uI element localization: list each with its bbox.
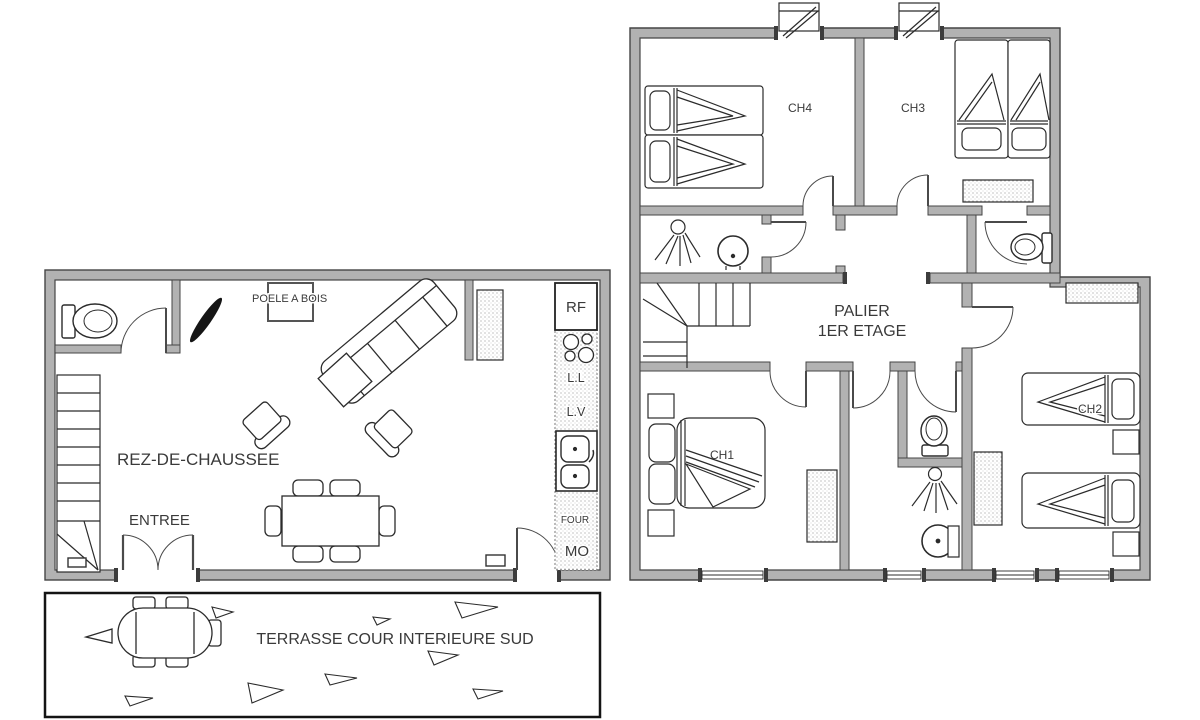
kitchen-strip: RF L.L L.V FOUR MO bbox=[555, 283, 597, 570]
floorplan-canvas: POELE A BOIS bbox=[0, 0, 1200, 720]
fridge-label: RF bbox=[566, 299, 586, 316]
ch2-label: CH2 bbox=[1078, 402, 1102, 416]
wall-vent bbox=[68, 558, 86, 567]
entrance-label: ENTREE bbox=[129, 512, 190, 529]
ground-floor-staircase bbox=[57, 375, 100, 572]
washing-machine-label: L.L bbox=[567, 371, 584, 385]
ch2-wardrobe bbox=[974, 452, 1002, 525]
ch3-label: CH3 bbox=[901, 101, 925, 115]
ch2-nightstand bbox=[1113, 532, 1139, 556]
ch2-bed-1 bbox=[1022, 373, 1140, 425]
ground-floor-title: REZ-DE-CHAUSSEE bbox=[117, 450, 279, 469]
kitchen-sink bbox=[556, 431, 597, 491]
landing-label-1: PALIER bbox=[834, 303, 890, 320]
ch3-bed-2 bbox=[1008, 40, 1050, 158]
floorplan-page: POELE A BOIS bbox=[0, 0, 1200, 720]
entrance-opening bbox=[116, 569, 196, 582]
ch2-bed-2 bbox=[1022, 473, 1140, 528]
dishwasher-label: L.V bbox=[567, 405, 586, 419]
bathroom-toilet bbox=[921, 416, 948, 456]
jamb bbox=[926, 272, 930, 284]
terrace-plan: TERRASSE COUR INTERIEURE SUD bbox=[45, 593, 600, 717]
microwave-label: MO bbox=[565, 543, 589, 560]
oven-label: FOUR bbox=[561, 515, 589, 526]
wc-toilet bbox=[62, 304, 117, 338]
landing-label-2: 1ER ETAGE bbox=[818, 323, 907, 340]
ch2-nightstand bbox=[1113, 430, 1139, 454]
ch1-label: CH1 bbox=[710, 448, 734, 462]
first-floor-plan: CH4 CH3 PALIER 1ER ETAGE bbox=[630, 3, 1150, 582]
wall-vent bbox=[486, 555, 505, 566]
ch4-label: CH4 bbox=[788, 101, 812, 115]
ch1-wardrobe bbox=[807, 470, 837, 542]
bathroom-basin bbox=[922, 525, 959, 557]
jamb bbox=[843, 272, 847, 284]
terrace-label: TERRASSE COUR INTERIEURE SUD bbox=[256, 631, 533, 648]
ground-floor-plan: POELE A BOIS bbox=[45, 270, 610, 582]
ch2-dresser bbox=[1066, 283, 1138, 303]
wood-stove-label: POELE A BOIS bbox=[252, 293, 327, 305]
ch3-dresser bbox=[963, 180, 1033, 202]
rear-door-opening bbox=[516, 569, 558, 582]
ch3-bed-1 bbox=[955, 40, 1008, 158]
ch4-bed-1 bbox=[645, 86, 763, 135]
cabinet bbox=[477, 290, 503, 360]
ch4-bed-2 bbox=[645, 135, 763, 188]
